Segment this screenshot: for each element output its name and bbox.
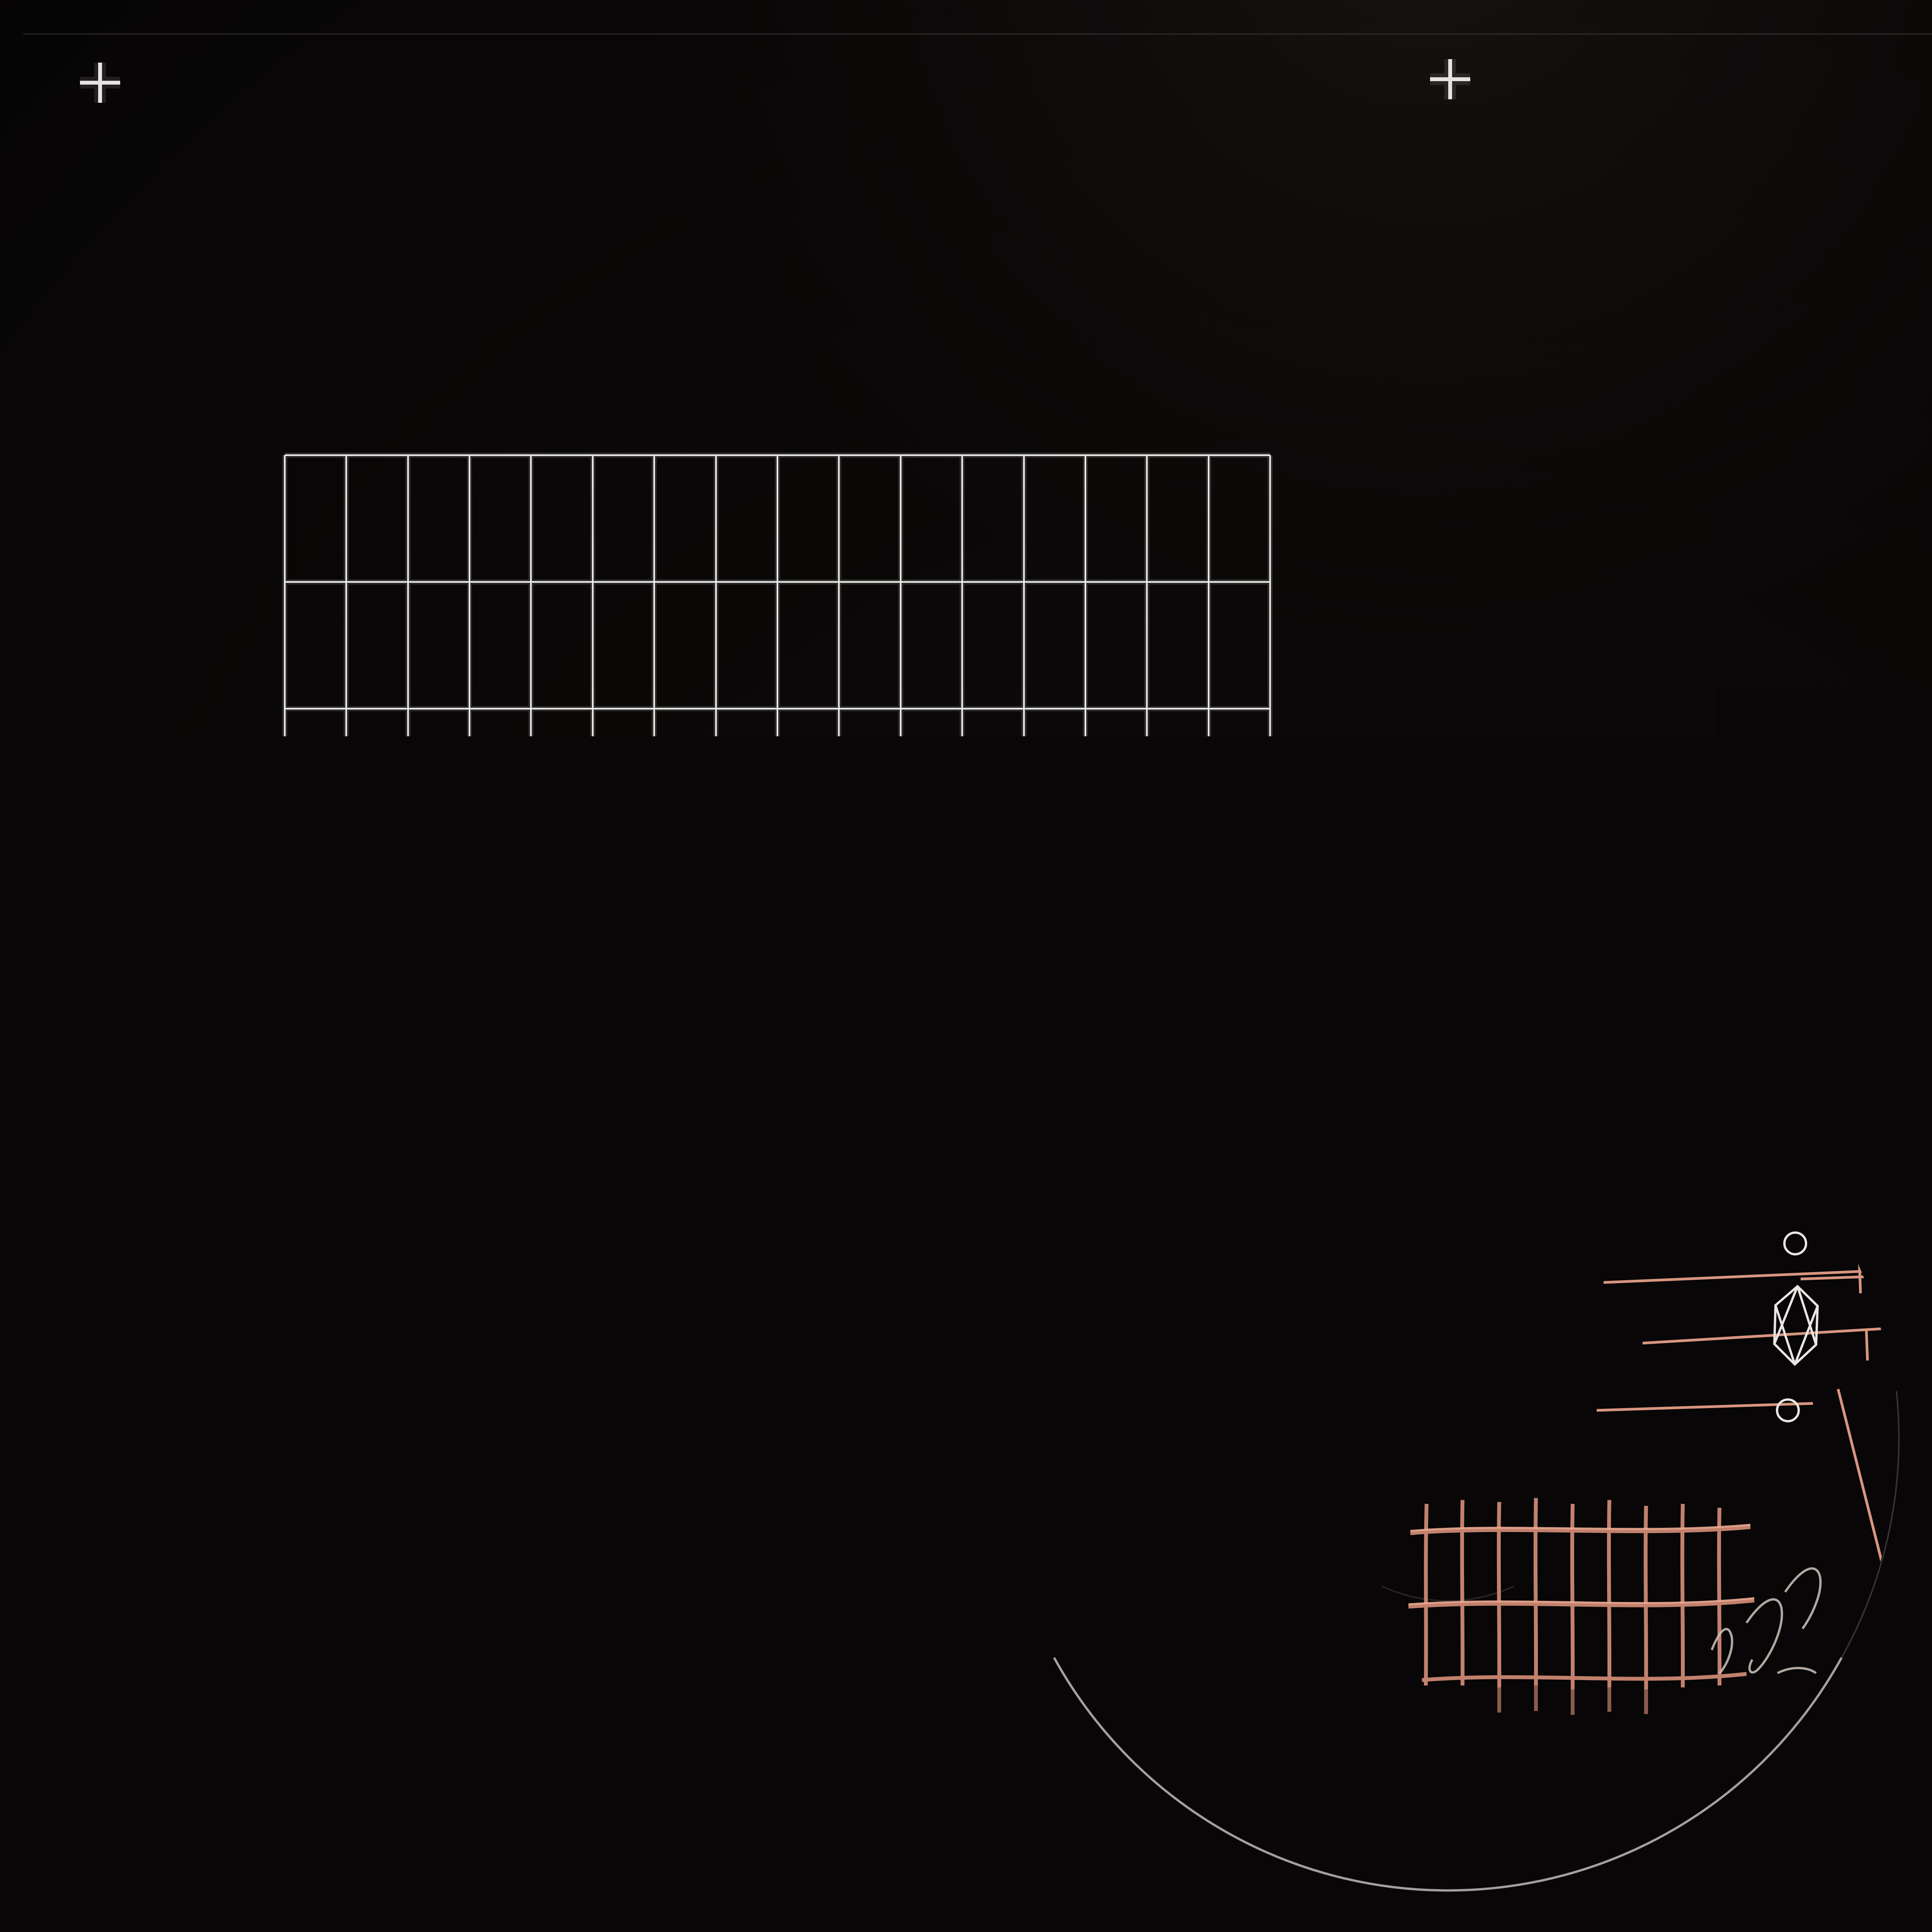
svg-text:B: B [1137, 1172, 1167, 1218]
svg-text:& STOMP BOXX: & STOMP BOXX [1221, 1125, 1476, 1176]
svg-text:1: Curved Blade: 1: Curved Blade [1216, 1192, 1386, 1215]
svg-text:2: Natural Desire: 2: Natural Desire [1216, 1216, 1406, 1239]
svg-text:Fine Line: Fine Line [1492, 1104, 1591, 1127]
